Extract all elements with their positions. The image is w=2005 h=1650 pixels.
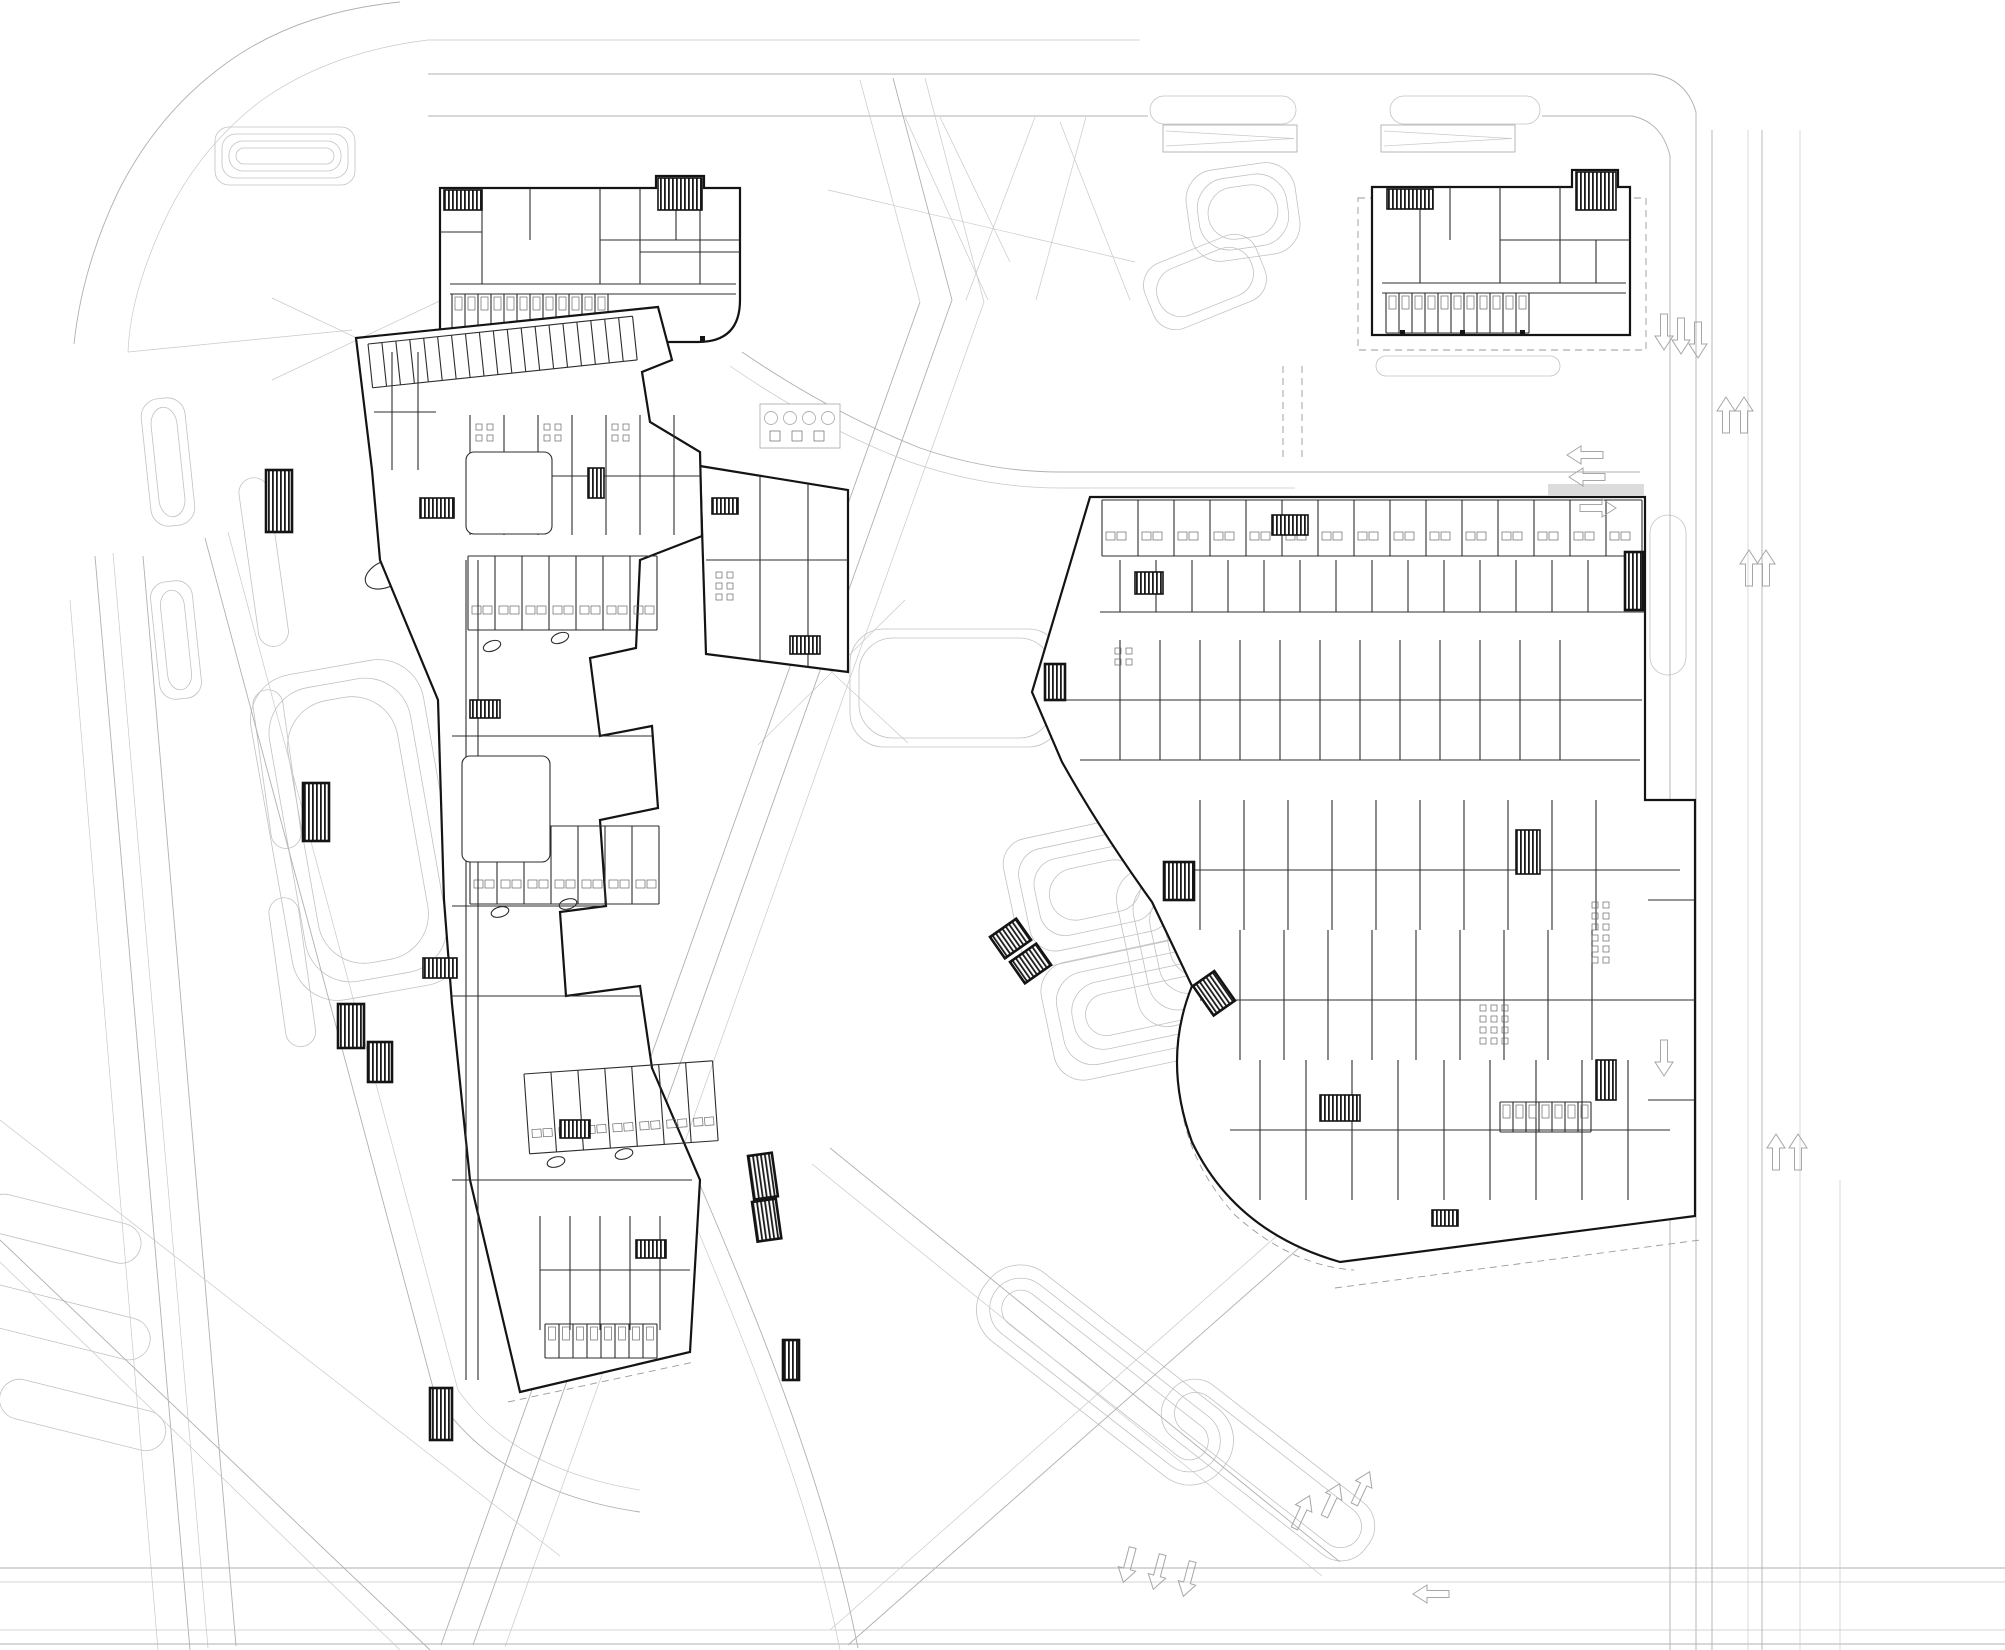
site-plan-sheet: Architectural masterplan ground-floor si… [0,0,2005,1650]
buildings-layer [356,170,1695,1392]
site-plan-drawing: Architectural masterplan ground-floor si… [0,0,2005,1650]
